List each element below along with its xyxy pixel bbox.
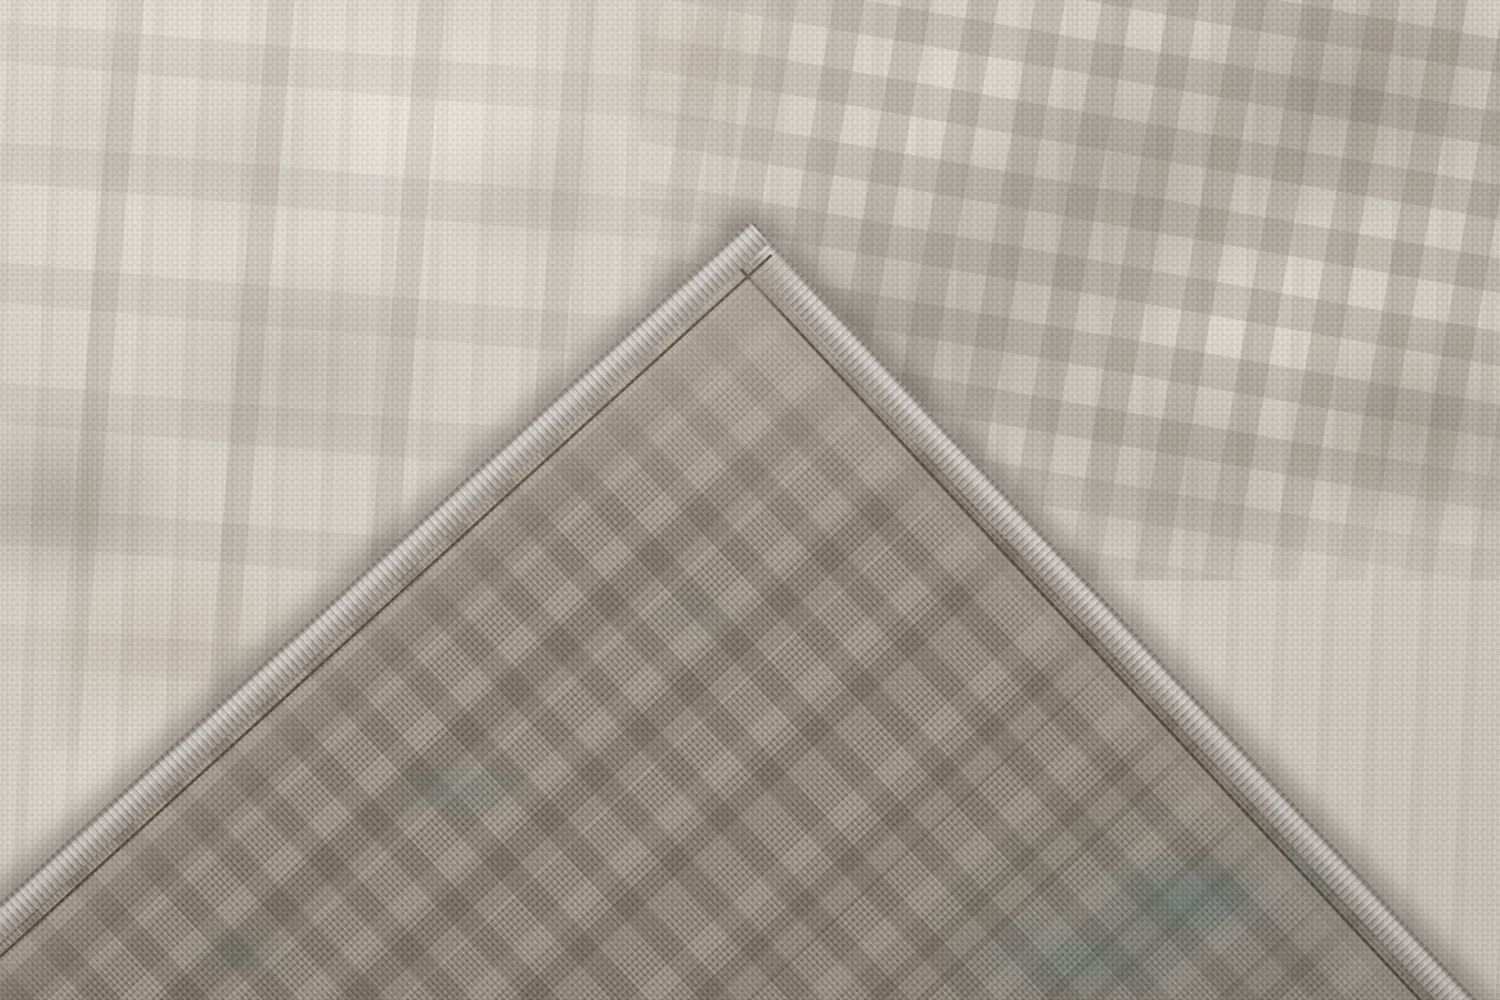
- rug-photo: [0, 0, 1500, 1000]
- photo-vignette: [0, 0, 1500, 1000]
